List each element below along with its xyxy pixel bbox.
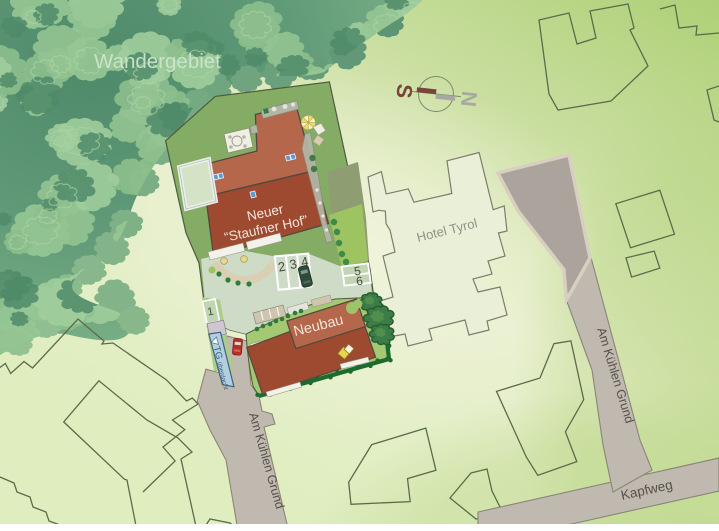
svg-text:N: N xyxy=(456,90,481,108)
svg-text:Wandergebiet: Wandergebiet xyxy=(94,50,221,73)
svg-text:S: S xyxy=(391,83,416,100)
